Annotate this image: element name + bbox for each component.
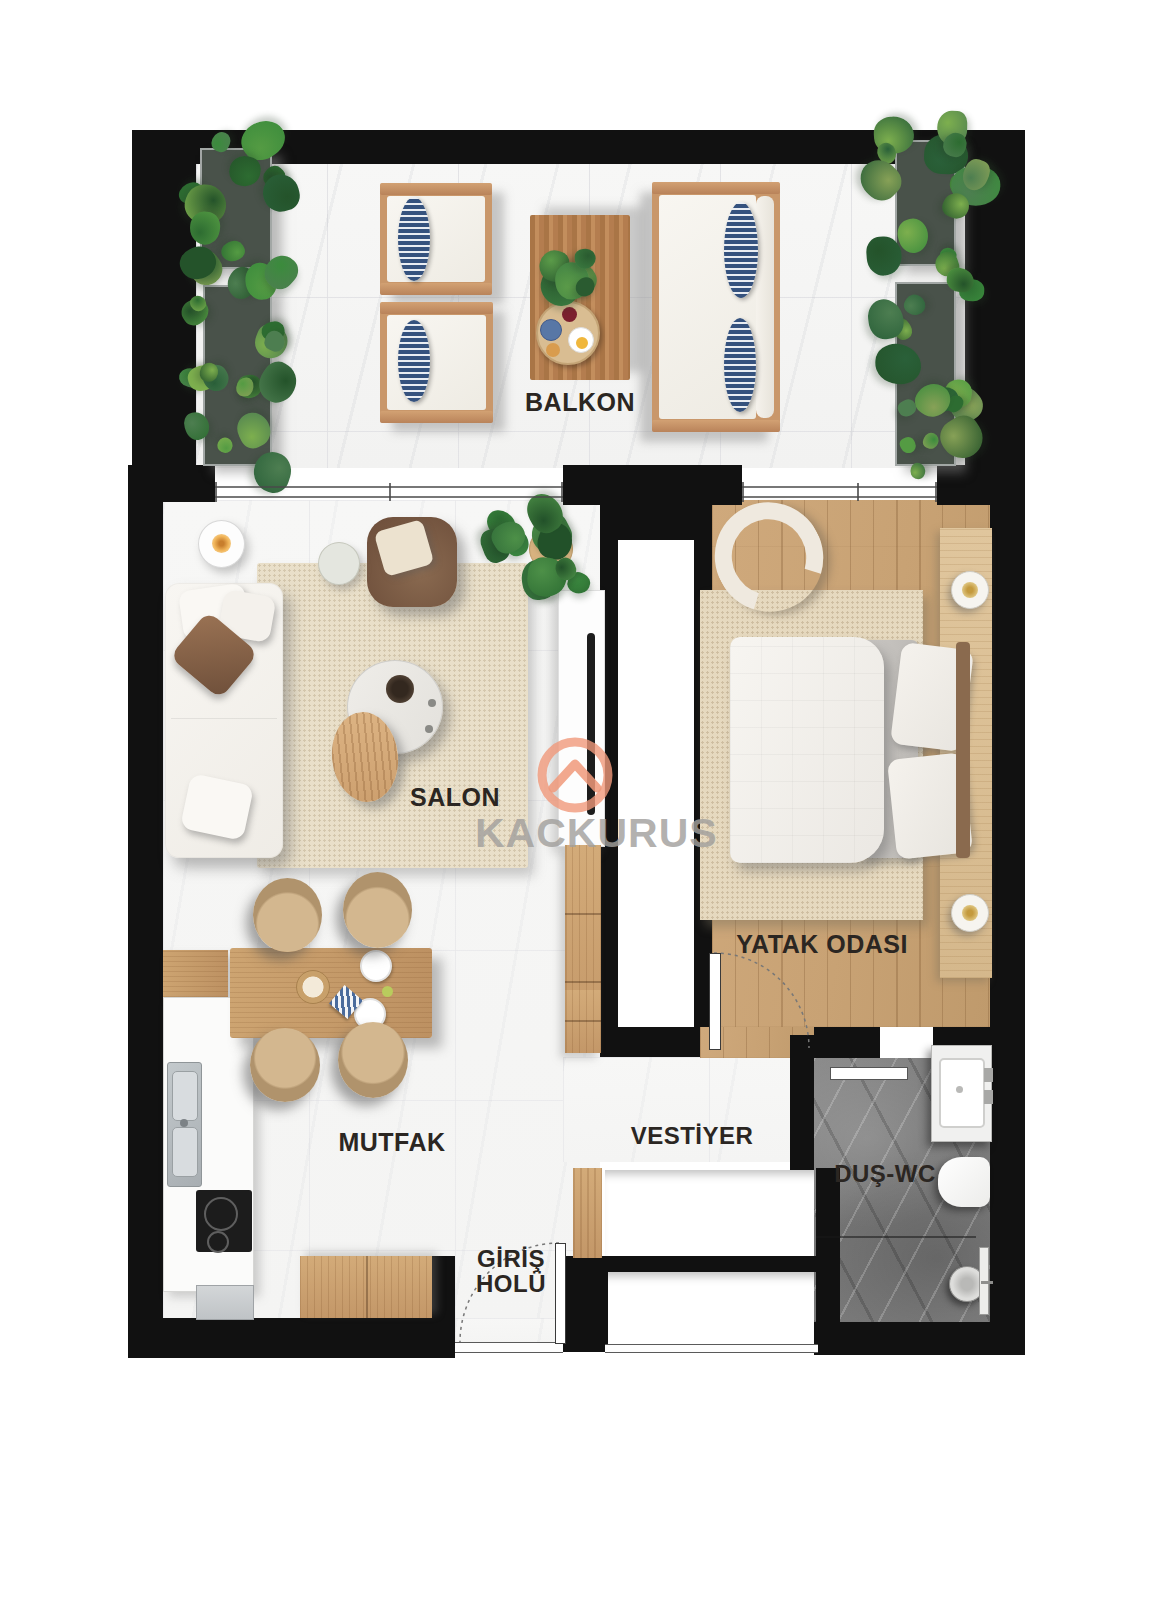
washbasin	[939, 1058, 985, 1128]
tv-console	[558, 590, 605, 847]
plant-foliage	[921, 431, 941, 452]
faucet	[180, 1119, 188, 1127]
shower-arm	[981, 1281, 993, 1284]
wall-below-cloakroom	[602, 1256, 820, 1272]
armrest	[380, 411, 493, 423]
room-label-kitchen: MUTFAK	[338, 1128, 445, 1157]
white-pillow	[180, 773, 254, 841]
plants	[878, 128, 978, 278]
dining-chair	[343, 872, 412, 948]
sofa-frame	[652, 420, 780, 432]
wall-bottom-mid	[563, 1256, 608, 1352]
bathroom-door	[830, 1067, 908, 1080]
faucet	[984, 1068, 993, 1082]
plants	[880, 278, 975, 473]
dining-chair	[250, 1028, 320, 1102]
wall-bathroom-left-upper	[790, 1035, 814, 1170]
knob	[428, 699, 436, 707]
bedroom-door	[709, 953, 721, 1050]
floor-lamp	[198, 520, 245, 568]
armrest	[380, 183, 492, 195]
floor-plan: BALKON SALON YATAK ODASI MUTFAK VESTİYER…	[0, 0, 1158, 1600]
bowl	[386, 675, 414, 703]
room-label-entry-line2: HOLÜ	[476, 1270, 546, 1298]
shaft	[618, 540, 694, 1027]
wall-bottom-left	[128, 1318, 455, 1358]
base-cabinet	[300, 1256, 432, 1318]
wall-entry-pier	[428, 1256, 455, 1318]
oven-front	[196, 1285, 254, 1320]
striped-pillow	[724, 202, 758, 298]
toilet	[938, 1157, 990, 1207]
room-label-shower-wc: DUŞ-WC	[834, 1160, 936, 1188]
burner	[204, 1197, 238, 1231]
plate-blue	[540, 319, 562, 341]
lamp-flame	[962, 905, 978, 921]
lime	[382, 986, 393, 997]
plants	[185, 135, 290, 285]
sofa-frame	[652, 182, 780, 194]
bedside-lamp	[951, 894, 989, 932]
room-label-living: SALON	[410, 783, 500, 812]
knob	[425, 725, 433, 733]
plate	[360, 950, 392, 982]
plants	[188, 280, 288, 475]
wood-bowl	[296, 970, 330, 1004]
wall-right-outer	[990, 465, 1025, 1355]
room-label-entry-line1: GİRİŞ	[477, 1245, 545, 1273]
sink-bowl	[172, 1127, 198, 1177]
drain	[956, 1086, 963, 1093]
balcony-armchair	[380, 183, 492, 295]
cabinet-divider	[565, 1020, 601, 1022]
storage-niche-lower	[605, 1272, 817, 1346]
room-label-bedroom: YATAK ODASI	[736, 930, 908, 959]
accent-armchair	[367, 517, 457, 607]
vanity	[931, 1045, 992, 1142]
niche-bottom-line	[605, 1344, 818, 1353]
plant-foliage	[218, 237, 248, 266]
balcony-sofa	[652, 182, 780, 432]
room-label-balcony: BALKON	[525, 388, 635, 417]
shower-zone-line	[816, 1236, 976, 1238]
plant-foliage	[232, 408, 276, 453]
burner	[207, 1231, 229, 1253]
hall-cabinet-upper	[565, 990, 601, 1053]
cabinet-divider	[565, 913, 601, 915]
side-table	[318, 542, 360, 585]
armrest	[380, 283, 492, 295]
bed-duvet	[730, 637, 884, 863]
plant-foliage	[214, 435, 234, 455]
kitchen-counter-wood	[163, 950, 228, 997]
monstera-plant	[495, 498, 595, 593]
entry-door-floor	[455, 1318, 563, 1344]
cabinet-divider	[565, 981, 601, 983]
table-plant	[548, 225, 608, 287]
armrest	[380, 302, 493, 314]
dining-table	[230, 948, 432, 1038]
plant-foliage	[873, 342, 922, 385]
dining-chair	[338, 1022, 408, 1098]
bedside-lamp	[951, 571, 989, 609]
entry-threshold	[455, 1342, 563, 1353]
bread	[546, 343, 560, 357]
striped-pillow	[398, 197, 430, 281]
room-label-cloakroom: VESTİYER	[631, 1122, 754, 1150]
bedroom-window	[742, 482, 937, 502]
sink-bowl	[172, 1071, 198, 1121]
balcony-armchair	[380, 302, 493, 423]
sofa-seam	[171, 718, 277, 719]
striped-pillow	[398, 320, 430, 402]
plant-foliage	[901, 291, 929, 319]
living-sofa	[165, 583, 283, 858]
headboard	[956, 642, 970, 858]
plant-foliage	[898, 435, 918, 456]
cooktop	[196, 1190, 252, 1252]
egg	[574, 335, 590, 351]
sofa-backrest	[756, 196, 774, 418]
tv	[587, 633, 595, 815]
hall-wardrobe	[573, 1168, 602, 1258]
plant-foliage	[908, 460, 928, 480]
wall-left-outer	[128, 465, 163, 1358]
storage-niche-upper	[605, 1170, 817, 1256]
plant-foliage	[865, 236, 902, 277]
striped-pillow	[724, 318, 756, 412]
cream-pillow	[374, 519, 435, 577]
entry-door	[555, 1243, 566, 1344]
wall-bedroom-bottom	[600, 1027, 700, 1057]
plant-foliage	[574, 248, 596, 269]
lamp-flame	[962, 582, 978, 598]
berries	[562, 307, 577, 322]
faucet	[984, 1090, 993, 1104]
dining-chair	[253, 878, 322, 952]
cabinet-divider	[366, 1256, 368, 1318]
lamp-glow	[212, 534, 231, 553]
wall-bottom-right	[814, 1322, 1025, 1355]
wall-bathroom-top-a	[814, 1027, 880, 1058]
breakfast-tray	[536, 301, 600, 365]
kitchen-sink	[167, 1062, 202, 1187]
